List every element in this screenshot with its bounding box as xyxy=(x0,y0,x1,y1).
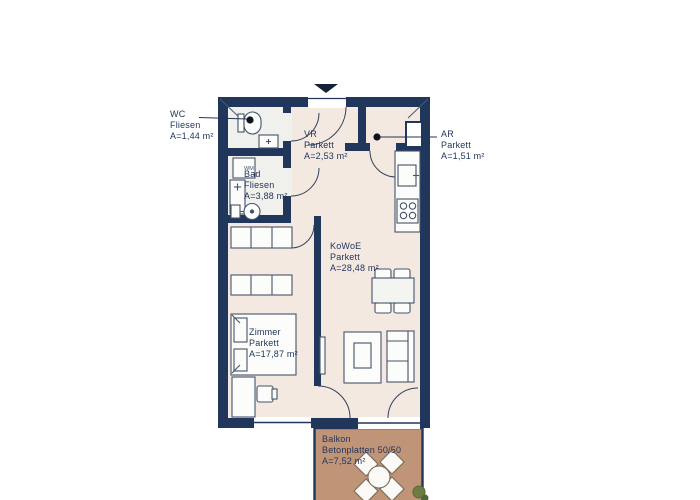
room-material: Parkett xyxy=(304,140,348,151)
room-name: WC xyxy=(170,109,214,120)
ar-door-opening xyxy=(370,142,396,152)
wc-door-opening xyxy=(282,113,292,141)
toilet-bowl-icon xyxy=(244,112,261,134)
entrance-door-opening xyxy=(308,96,346,108)
kitchen-counter xyxy=(395,151,420,232)
wardrobe-row-icon xyxy=(231,227,292,248)
chair-icon xyxy=(257,386,273,402)
room-label-zimmer: Zimmer Parkett A=17,87 m² xyxy=(249,327,298,360)
armchair-cushion-icon xyxy=(354,343,371,368)
entrance-arrow-icon xyxy=(314,84,338,93)
room-material: Parkett xyxy=(330,252,379,263)
room-name: Bad xyxy=(244,169,288,180)
room-material: Fliesen xyxy=(244,180,288,191)
room-name: VR xyxy=(304,129,348,140)
room-area: A=28,48 m² xyxy=(330,263,379,274)
pillow-icon xyxy=(234,318,247,342)
bedroom-wardrobe-icon xyxy=(232,377,255,417)
wardrobe-row-icon xyxy=(231,275,292,295)
room-area: A=1,51 m² xyxy=(441,151,485,162)
room-material: Betonplatten 50/50 xyxy=(322,445,401,456)
room-area: A=7,52 m² xyxy=(322,456,401,467)
floor-plan-page: WM xyxy=(0,0,700,500)
sofa-icon xyxy=(387,331,414,382)
room-label-wc: WC Fliesen A=1,44 m² xyxy=(170,109,214,142)
room-material: Parkett xyxy=(249,338,298,349)
tv-icon xyxy=(320,337,325,374)
room-name: AR xyxy=(441,129,485,140)
wall-wc-bad xyxy=(228,148,288,156)
ar-leader-dot xyxy=(373,133,380,140)
room-name: KoWoE xyxy=(330,241,379,252)
room-label-ar: AR Parkett A=1,51 m² xyxy=(441,129,485,162)
dining-table-icon xyxy=(372,278,414,303)
dining-chair-icon xyxy=(394,303,410,313)
room-label-vr: VR Parkett A=2,53 m² xyxy=(304,129,348,162)
room-name: Zimmer xyxy=(249,327,298,338)
balcony-table-icon xyxy=(368,466,390,488)
stove-icon xyxy=(397,199,418,223)
dining-chair-icon xyxy=(375,303,391,313)
room-name: Balkon xyxy=(322,434,401,445)
room-material: Fliesen xyxy=(170,120,214,131)
room-label-kowoe: KoWoE Parkett A=28,48 m² xyxy=(330,241,379,274)
basin-mount-icon xyxy=(231,205,240,218)
pillow-icon xyxy=(234,349,247,371)
wall-left xyxy=(218,97,228,428)
wc-leader-dot xyxy=(246,116,253,123)
room-area: A=2,53 m² xyxy=(304,151,348,162)
room-area: A=3,88 m² xyxy=(244,191,288,202)
room-area: A=17,87 m² xyxy=(249,349,298,360)
room-label-bad: Bad Fliesen A=3,88 m² xyxy=(244,169,288,202)
room-material: Parkett xyxy=(441,140,485,151)
chair-back-icon xyxy=(272,389,277,399)
toilet-tank-icon xyxy=(238,114,244,132)
room-area: A=1,44 m² xyxy=(170,131,214,142)
room-label-balkon: Balkon Betonplatten 50/50 A=7,52 m² xyxy=(322,434,401,467)
shaft-niche-icon xyxy=(406,122,422,147)
